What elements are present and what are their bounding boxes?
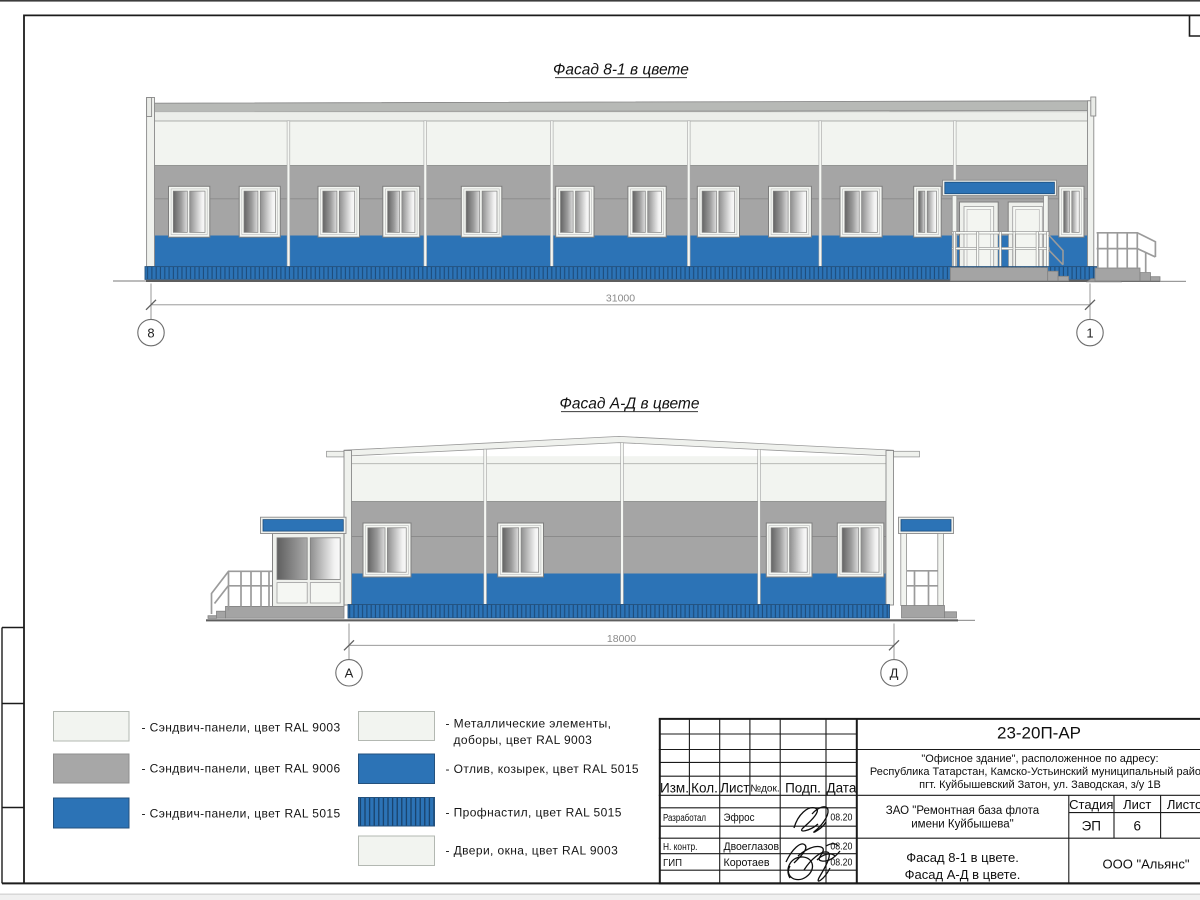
svg-text:Дата: Дата	[826, 780, 856, 795]
svg-text:Двоеглазов: Двоеглазов	[724, 841, 780, 853]
svg-text:имени Куйбышева": имени Куйбышева"	[911, 819, 1014, 831]
svg-text:08.20: 08.20	[830, 858, 852, 869]
svg-text:ЗАО "Ремонтная база флота: ЗАО "Ремонтная база флота	[886, 805, 1040, 817]
svg-text:пгт. Куйбышевский Затон, ул. З: пгт. Куйбышевский Затон, ул. Заводская, …	[919, 779, 1161, 791]
svg-text:Фасад 8-1 в цвете.: Фасад 8-1 в цвете.	[906, 850, 1019, 865]
svg-text:1: 1	[1086, 325, 1093, 340]
svg-text:Разработал: Разработал	[663, 812, 706, 824]
svg-text:"Офисное здание", расположенно: "Офисное здание", расположенное по адрес…	[921, 753, 1158, 765]
svg-text:доборы, цвет RAL 9003: доборы, цвет RAL 9003	[454, 733, 593, 747]
svg-text:08.20: 08.20	[830, 813, 852, 824]
svg-text:6: 6	[1133, 819, 1141, 834]
svg-text:Листов: Листов	[1167, 797, 1200, 812]
svg-text:- Отлив, козырек, цвет RAL 501: - Отлив, козырек, цвет RAL 5015	[446, 762, 640, 776]
svg-text:Изм.: Изм.	[660, 780, 689, 795]
svg-text:Кол.: Кол.	[691, 780, 718, 795]
svg-text:Фасад А-Д в цвете: Фасад А-Д в цвете	[560, 396, 700, 413]
svg-text:31000: 31000	[606, 293, 635, 305]
svg-text:Фасад 8-1 в цвете: Фасад 8-1 в цвете	[553, 62, 689, 79]
svg-text:23-20П-АР: 23-20П-АР	[997, 724, 1081, 743]
svg-text:- Профнастил, цвет RAL 5015: - Профнастил, цвет RAL 5015	[446, 806, 622, 820]
svg-text:№док.: №док.	[750, 784, 779, 795]
svg-text:ЭП: ЭП	[1082, 819, 1101, 834]
svg-text:- Сэндвич-панели, цвет RAL 900: - Сэндвич-панели, цвет RAL 9006	[142, 762, 341, 776]
svg-text:- Сэндвич-панели, цвет RAL 900: - Сэндвич-панели, цвет RAL 9003	[142, 721, 341, 735]
svg-text:Республика Татарстан, Камско-У: Республика Татарстан, Камско-Устьинский …	[870, 766, 1200, 778]
svg-text:А: А	[345, 666, 354, 681]
svg-text:- Металлические элементы,: - Металлические элементы,	[446, 717, 612, 731]
svg-text:Фасад А-Д в цвете.: Фасад А-Д в цвете.	[905, 867, 1021, 882]
svg-text:ООО "Альянс": ООО "Альянс"	[1103, 857, 1190, 872]
svg-text:Эфрос: Эфрос	[724, 812, 755, 824]
svg-text:18000: 18000	[607, 633, 636, 645]
svg-text:ГИП: ГИП	[663, 858, 682, 869]
svg-text:Подп.: Подп.	[785, 780, 821, 795]
svg-text:Н. контр.: Н. контр.	[663, 842, 698, 853]
svg-text:- Двери, окна, цвет RAL 9003: - Двери, окна, цвет RAL 9003	[446, 844, 619, 858]
svg-text:Коротаев: Коротаев	[724, 857, 770, 869]
svg-text:- Сэндвич-панели, цвет RAL 501: - Сэндвич-панели, цвет RAL 5015	[142, 807, 341, 821]
svg-text:Лист: Лист	[1123, 797, 1151, 812]
svg-text:Стадия: Стадия	[1069, 797, 1113, 812]
svg-text:Д: Д	[890, 666, 899, 681]
svg-text:Лист: Лист	[720, 780, 749, 795]
svg-text:8: 8	[147, 325, 154, 340]
